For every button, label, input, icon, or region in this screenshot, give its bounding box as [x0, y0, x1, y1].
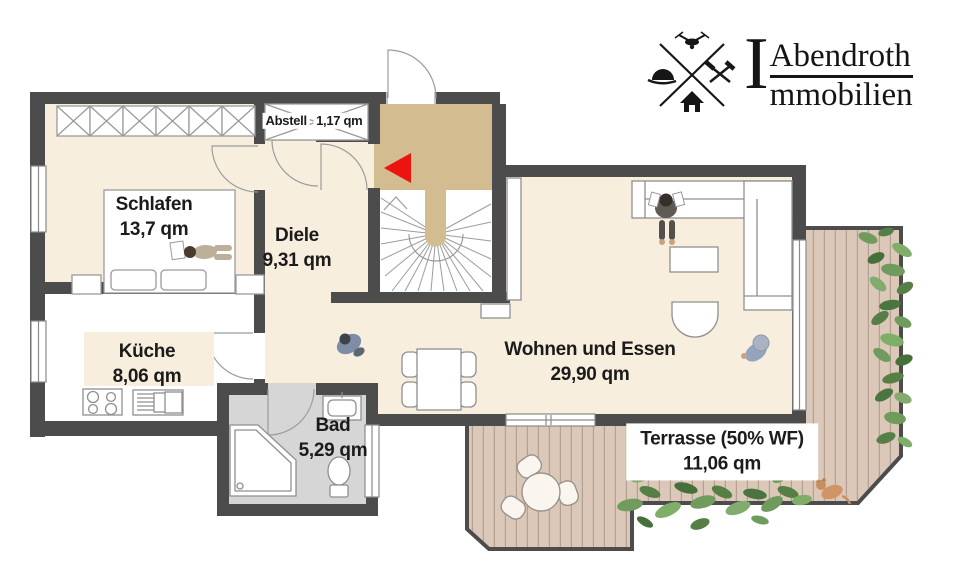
logo-initial: I	[744, 32, 769, 114]
logo-emblem	[646, 28, 740, 120]
hard-hat-icon	[648, 69, 676, 83]
window-kueche	[31, 321, 46, 382]
wall-bad-bottom	[217, 504, 378, 516]
room-area: 13,7 qm	[116, 217, 193, 242]
sideboard	[481, 304, 510, 318]
room-area: 11,06 qm	[640, 452, 804, 477]
wall-stair-right	[492, 104, 506, 303]
dining-table	[417, 349, 461, 410]
room-label-terrasse: Terrasse (50% WF) 11,06 qm	[626, 423, 818, 480]
house-icon	[680, 91, 704, 112]
stairwell	[380, 104, 492, 292]
terrace-table	[522, 473, 560, 511]
room-name: Diele	[263, 223, 332, 248]
room-name: Terrasse (50% WF)	[640, 426, 804, 451]
room-label-diele: Diele 9,31 qm	[263, 223, 332, 273]
wall-kueche-bottom	[30, 421, 217, 436]
window-schlafen	[31, 166, 46, 232]
logo-line1: Abendroth	[770, 40, 913, 78]
room-area: 1,17 qm	[313, 113, 365, 129]
logo-line2: mmobilien	[770, 78, 913, 114]
window-wohnen-bottom	[506, 414, 595, 426]
nightstand-left	[72, 275, 101, 294]
room-label-schlafen: Schlafen 13,7 qm	[116, 192, 193, 242]
room-label-wohnen-essen: Wohnen und Essen 29,90 qm	[504, 337, 675, 387]
room-area: 5,29 qm	[299, 438, 368, 463]
crossed-hammers-icon	[706, 62, 734, 82]
floorplan-canvas: Schlafen 13,7 qm Abstell 1,17 qm Diele 9…	[0, 0, 960, 586]
room-name: Küche	[113, 339, 182, 364]
wardrobe	[57, 106, 255, 136]
wall-stair-left	[368, 104, 380, 303]
room-label-kueche: Küche 8,06 qm	[113, 339, 182, 389]
wall-stair-bottom	[331, 292, 510, 303]
sofa-vertical	[744, 181, 792, 310]
coffee-table	[670, 247, 718, 272]
bad-door-opening	[268, 383, 316, 395]
room-name: Schlafen	[116, 192, 193, 217]
room-area: 9,31 qm	[263, 248, 332, 273]
stair-tongue-end	[425, 226, 446, 247]
wall-left	[30, 92, 45, 437]
drone-icon	[675, 32, 709, 49]
shelf	[507, 178, 521, 300]
entrance-opening	[386, 92, 436, 104]
room-label-bad: Bad 5,29 qm	[299, 413, 368, 463]
schlafen-door-opening	[254, 144, 265, 190]
company-logo: I Abendroth mmobilien	[646, 28, 913, 120]
pillow-right	[161, 270, 206, 290]
room-name: Wohnen und Essen	[504, 337, 675, 362]
wall-wohnen-top	[492, 165, 804, 177]
window-wohnen-right	[793, 240, 806, 410]
kueche-door-opening	[254, 333, 265, 379]
entrance-door	[388, 50, 436, 98]
nightstand-right	[236, 275, 264, 294]
room-area: 29,90 qm	[504, 362, 675, 387]
room-area: 8,06 qm	[113, 364, 182, 389]
stair-door-opening	[368, 144, 374, 188]
room-name: Abstell	[263, 113, 310, 129]
room-label-abstell: Abstell 1,17 qm	[263, 113, 366, 129]
logo-text: I Abendroth mmobilien	[744, 28, 913, 114]
stair-landing	[380, 104, 492, 190]
room-name: Bad	[299, 413, 368, 438]
wall-bad-left	[217, 383, 229, 516]
pillow-left	[111, 270, 156, 290]
